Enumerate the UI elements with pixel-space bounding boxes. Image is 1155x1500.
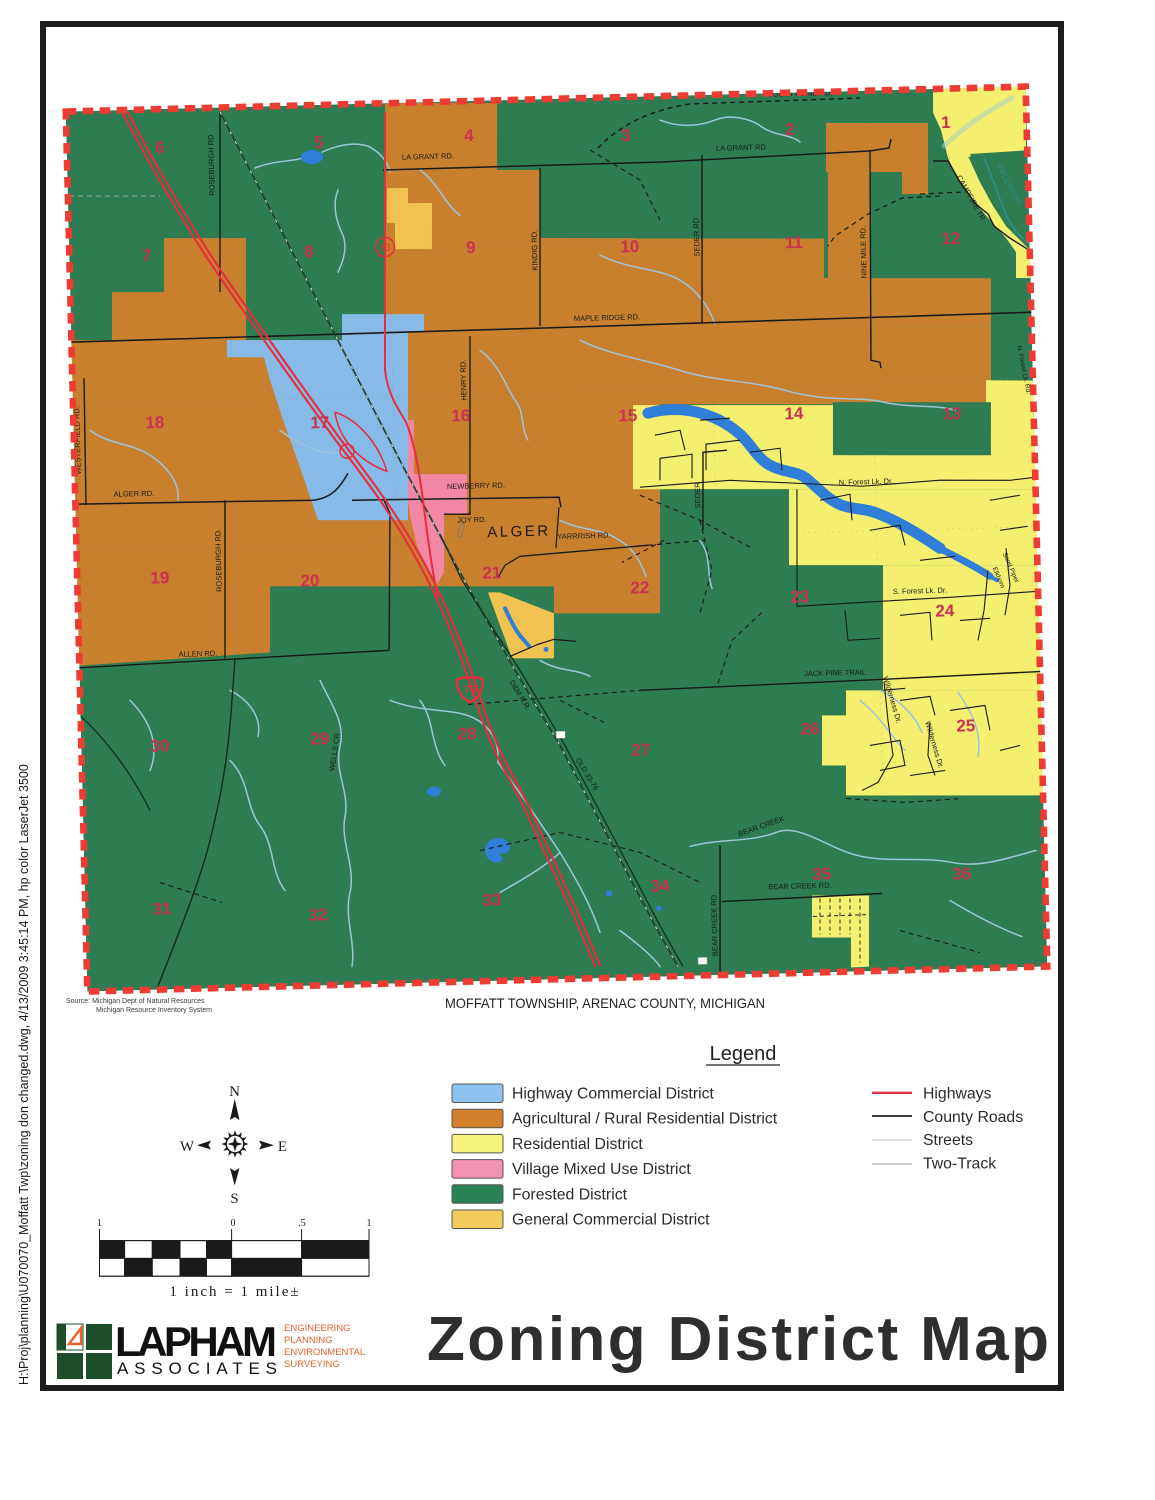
svg-text:14: 14 [784,404,804,423]
svg-text:15: 15 [618,406,637,425]
svg-text:MOFFATT TOWNSHIP, ARENAC COUNT: MOFFATT TOWNSHIP, ARENAC COUNTY, MICHIGA… [445,995,765,1011]
svg-text:75: 75 [464,684,476,696]
svg-text:1: 1 [97,1218,102,1229]
svg-text:1 inch = 1 mile±: 1 inch = 1 mile± [169,1284,300,1300]
svg-text:S. Forest Lk. Dr.: S. Forest Lk. Dr. [893,586,947,596]
svg-text:30: 30 [150,736,169,755]
svg-text:LA GRANT RD.: LA GRANT RD. [716,142,768,152]
svg-text:27: 27 [631,740,650,759]
svg-text:11: 11 [785,233,803,252]
svg-text:W: W [180,1139,195,1155]
svg-text:Residential District: Residential District [512,1136,643,1153]
svg-text:ENGINEERING: ENGINEERING [284,1323,351,1334]
svg-text:LA GRANT RD.: LA GRANT RD. [402,151,454,161]
svg-text:1: 1 [941,113,951,132]
svg-text:20: 20 [300,571,319,590]
svg-text:MAPLE RIDGE RD.: MAPLE RIDGE RD. [574,312,640,323]
svg-text:32: 32 [308,905,327,924]
svg-text:NINE MILE RD.: NINE MILE RD. [858,226,868,279]
svg-text:SEDER: SEDER [693,482,703,509]
svg-text:33: 33 [379,242,391,253]
svg-text:BEAR CREEK RD.: BEAR CREEK RD. [768,881,832,892]
svg-text:24: 24 [935,601,955,620]
svg-text:N: N [229,1084,240,1100]
svg-text:12: 12 [941,229,960,248]
svg-text:23: 23 [790,587,809,606]
svg-text:Zoning District Map: Zoning District Map [427,1305,1049,1374]
svg-text:County Roads: County Roads [923,1109,1023,1126]
svg-text:5: 5 [314,133,324,152]
svg-text:29: 29 [310,729,329,748]
svg-text:ROSEBURGH RD.: ROSEBURGH RD. [213,529,224,593]
svg-text:25: 25 [956,716,975,735]
svg-text:10: 10 [620,237,639,256]
svg-text:13: 13 [942,404,961,423]
svg-text:17: 17 [310,413,329,432]
svg-text:0: 0 [231,1218,236,1229]
svg-text:36: 36 [952,864,971,883]
svg-text:26: 26 [800,719,819,738]
svg-text:KINDIG RD.: KINDIG RD. [530,230,540,271]
svg-text:Highway Commercial District: Highway Commercial District [512,1086,714,1103]
svg-text:16: 16 [451,406,470,425]
svg-text:22: 22 [630,578,649,597]
svg-text:9: 9 [466,238,476,257]
svg-text:4: 4 [464,126,474,145]
svg-text:SEDER RD: SEDER RD [692,217,702,257]
svg-text:Legend: Legend [710,1043,777,1065]
svg-text:Forested District: Forested District [512,1186,628,1203]
svg-text:28: 28 [457,724,476,743]
svg-text:2: 2 [785,120,795,139]
svg-text:7: 7 [142,246,152,265]
svg-text:HENRY RD.: HENRY RD. [458,360,468,401]
svg-text:BEAR CREEK RD: BEAR CREEK RD [709,894,720,956]
svg-text:ROSEBURGH RD: ROSEBURGH RD [206,134,217,196]
svg-text:6: 6 [155,138,165,157]
svg-text:31: 31 [152,899,171,918]
svg-text:JACK PINE TRAIL: JACK PINE TRAIL [804,668,866,679]
svg-text:NEWBERRY RD.: NEWBERRY RD. [447,481,505,492]
svg-text:SURVEYING: SURVEYING [284,1359,340,1370]
svg-text:21: 21 [482,563,501,582]
svg-text:LAPHAM: LAPHAM [115,1318,277,1365]
svg-text:33: 33 [482,890,501,909]
svg-text:N. Forest Lk. Dr.: N. Forest Lk. Dr. [839,477,894,487]
svg-text:ALGER RD.: ALGER RD. [114,489,155,499]
svg-text:E: E [278,1139,287,1155]
svg-text:19: 19 [150,568,169,587]
svg-text:1: 1 [367,1218,372,1229]
svg-text:Village Mixed Use District: Village Mixed Use District [512,1161,691,1178]
svg-text:8: 8 [304,242,314,261]
svg-text:.5: .5 [298,1218,306,1229]
svg-text:General Commercial District: General Commercial District [512,1212,710,1229]
svg-text:H:\Proj\planning\U070070_Moffa: H:\Proj\planning\U070070_Moffatt Twp\zon… [17,764,31,1385]
svg-text:Agricultural / Rural Residenti: Agricultural / Rural Residential Distric… [512,1111,778,1128]
svg-text:ALGER: ALGER [487,522,551,541]
svg-text:Source: Michigan Dept of Na: Source: Michigan Dept of Natural Resourc… [66,998,205,1005]
svg-text:YARRRISH RD.: YARRRISH RD. [557,531,610,541]
svg-text:Streets: Streets [923,1132,973,1149]
svg-text:3: 3 [621,126,631,145]
svg-text:PLANNING: PLANNING [284,1335,333,1346]
svg-text:JOY RD.: JOY RD. [457,515,487,525]
svg-text:34: 34 [650,876,670,895]
svg-text:18: 18 [145,413,164,432]
svg-text:ENVIRONMENTAL: ENVIRONMENTAL [284,1347,365,1358]
svg-text:S: S [230,1191,238,1207]
svg-text:ALLEN RD.: ALLEN RD. [178,649,217,659]
svg-text:ASSOCIATES: ASSOCIATES [117,1359,277,1378]
svg-text:Two-Track: Two-Track [923,1156,996,1173]
svg-text:Michigan Resource Inventory Sy: Michigan Resource Inventory System [96,1007,212,1014]
svg-text:Highways: Highways [923,1086,992,1103]
